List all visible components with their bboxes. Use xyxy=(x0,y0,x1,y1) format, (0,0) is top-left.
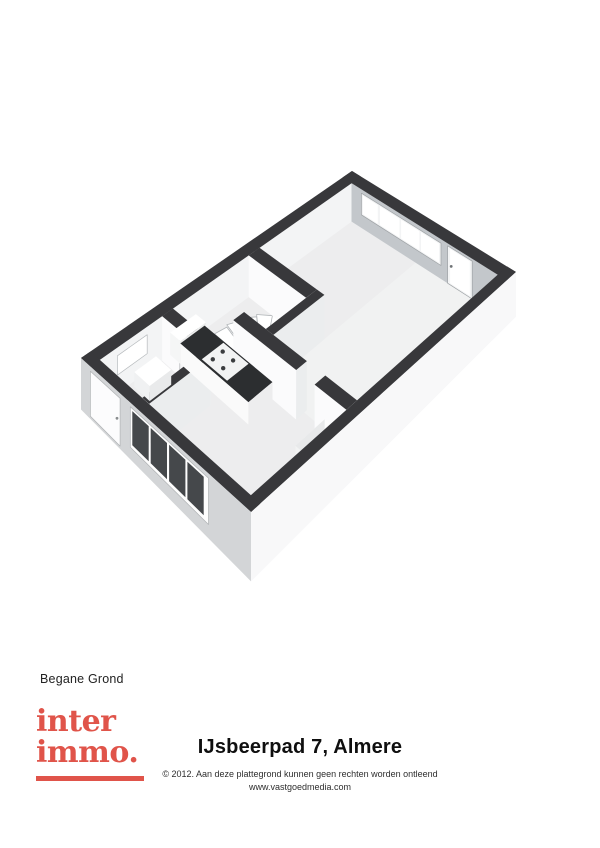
copyright-line: © 2012. Aan deze plattegrond kunnen geen… xyxy=(110,768,490,781)
footer-text-block: IJsbeerpad 7, Almere © 2012. Aan deze pl… xyxy=(110,736,490,794)
property-title: IJsbeerpad 7, Almere xyxy=(110,736,490,759)
copyright-text: © 2012. Aan deze plattegrond kunnen geen… xyxy=(110,768,490,794)
floor-label: Begane Grond xyxy=(40,672,124,686)
website-url: www.vastgoedmedia.com xyxy=(110,781,490,794)
floorplan-3d-render xyxy=(0,0,600,660)
logo-text-line1: inter xyxy=(36,706,144,737)
page: Begane Grond inter immo. IJsbeerpad 7, A… xyxy=(0,0,600,848)
